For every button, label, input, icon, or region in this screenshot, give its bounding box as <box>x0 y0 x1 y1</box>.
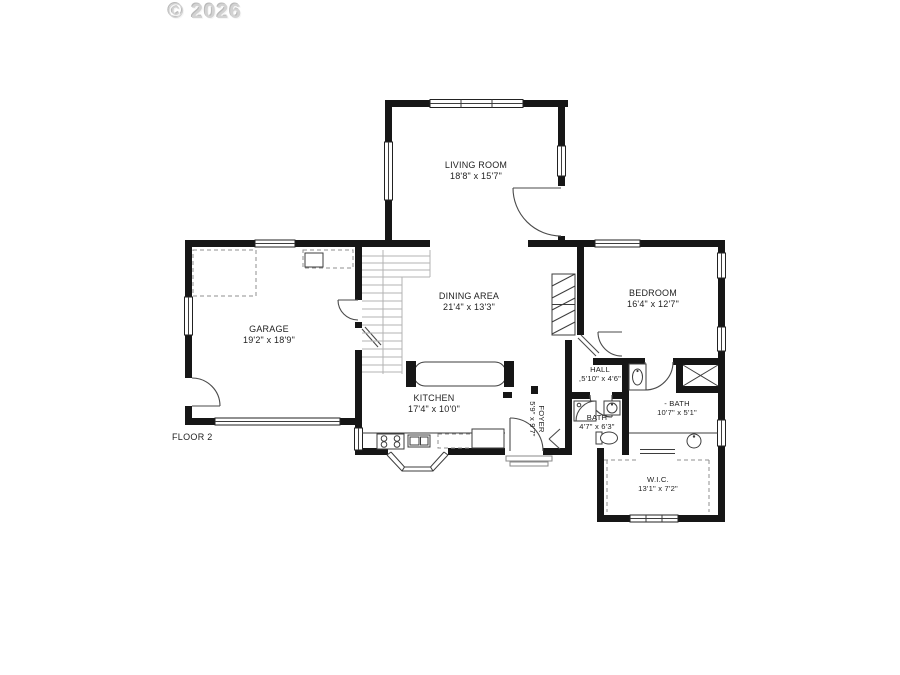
dining-area-label: DINING AREA 21'4" x 13'3" <box>439 291 499 314</box>
garage-side-door <box>192 378 220 406</box>
hall-label: HALL ,5'10" x 4'6" <box>579 365 621 383</box>
garage-left-window <box>185 297 193 335</box>
living-room-right-window <box>558 146 566 176</box>
room-dims: 5'9" x 9'7" <box>528 401 537 436</box>
large-bath-vanity-top <box>629 364 646 390</box>
toilet <box>596 432 618 444</box>
wic-label: W.I.C. 13'1" x 7'2" <box>638 475 678 493</box>
room-dims: 18'8" x 15'7" <box>445 171 507 182</box>
room-name: BATH <box>579 413 614 422</box>
room-dims: ,5'10" x 4'6" <box>579 374 621 383</box>
garage-door <box>215 418 340 425</box>
wic-bottom-window <box>630 515 678 522</box>
room-name: - BATH <box>657 399 697 408</box>
room-name: FOYER <box>537 401 546 436</box>
bedroom-door <box>598 332 622 356</box>
wic-opening <box>640 450 675 454</box>
room-dims: 13'1" x 7'2" <box>638 484 678 493</box>
room-dims: 19'2" x 18'9" <box>243 335 295 346</box>
bedroom-label: BEDROOM 16'4" x 12'7" <box>627 288 679 311</box>
kitchen-sink <box>408 435 430 447</box>
stove <box>377 434 404 449</box>
kitchen-left-window <box>355 428 363 450</box>
room-name: W.I.C. <box>638 475 678 484</box>
room-name: HALL <box>579 365 621 374</box>
hall-diagonal-door <box>578 335 599 356</box>
large-bath-door <box>645 362 673 390</box>
bath-right-window <box>718 420 726 446</box>
room-name: KITCHEN <box>408 393 460 404</box>
bay-window <box>387 452 448 471</box>
large-bath-vanity-bottom <box>629 433 718 448</box>
garage-top-window <box>255 240 295 247</box>
small-bath-label: BATH 4'7" x 6'3" <box>579 413 614 431</box>
built-in-cabinet <box>552 274 575 335</box>
living-room-door <box>513 188 561 236</box>
living-room-top-window <box>430 100 523 108</box>
foyer-label: FOYER 5'9" x 9'7" <box>528 401 546 436</box>
garage-label: GARAGE 19'2" x 18'9" <box>243 324 295 347</box>
room-name: GARAGE <box>243 324 295 335</box>
room-name: DINING AREA <box>439 291 499 302</box>
porch-steps <box>506 456 552 466</box>
floor-plan-page: © 2026 <box>0 0 900 675</box>
floor-plan-drawing <box>0 0 900 675</box>
bedroom-top-window <box>595 240 640 247</box>
garage-interior-door <box>338 300 358 320</box>
garage-storage-dashed <box>193 250 256 296</box>
room-name: LIVING ROOM <box>445 160 507 171</box>
refrigerator <box>472 429 504 448</box>
furnace-unit <box>303 250 353 268</box>
room-name: BEDROOM <box>627 288 679 299</box>
room-dims: 17'4" x 10'0" <box>408 404 460 415</box>
living-room-left-window <box>385 142 393 200</box>
bedroom-right-window-1 <box>718 253 726 278</box>
room-dims: 21'4" x 13'3" <box>439 302 499 313</box>
large-bath-label: - BATH 10'7" x 5'1" <box>657 399 697 417</box>
room-dims: 10'7" x 5'1" <box>657 408 697 417</box>
entry-closet-door <box>549 429 560 449</box>
room-dims: 16'4" x 12'7" <box>627 299 679 310</box>
kitchen-island <box>406 361 514 387</box>
kitchen-label: KITCHEN 17'4" x 10'0" <box>408 393 460 416</box>
linen-closet-x <box>683 365 718 386</box>
bedroom-right-window-2 <box>718 327 726 351</box>
stair-hall-door <box>362 327 381 347</box>
living-room-label: LIVING ROOM 18'8" x 15'7" <box>445 160 507 183</box>
room-dims: 4'7" x 6'3" <box>579 422 614 431</box>
stairs <box>362 250 430 374</box>
floor-number-label: FLOOR 2 <box>172 432 213 442</box>
